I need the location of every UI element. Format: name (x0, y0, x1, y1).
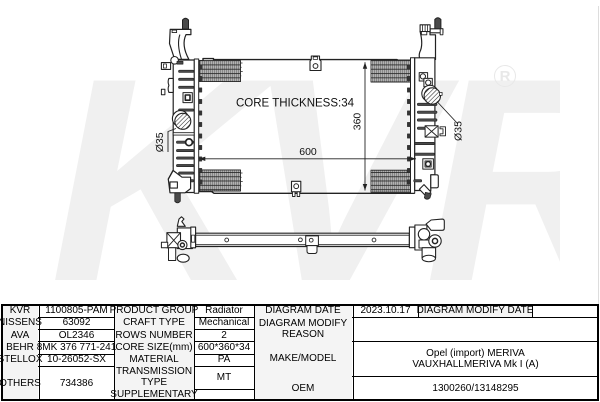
svg-text:360: 360 (352, 113, 364, 131)
svg-text:CORE THICKNESS:34: CORE THICKNESS:34 (236, 98, 355, 110)
svg-text:Ø35: Ø35 (154, 132, 166, 152)
svg-text:Ø35: Ø35 (453, 121, 465, 141)
svg-text:600: 600 (299, 146, 317, 158)
